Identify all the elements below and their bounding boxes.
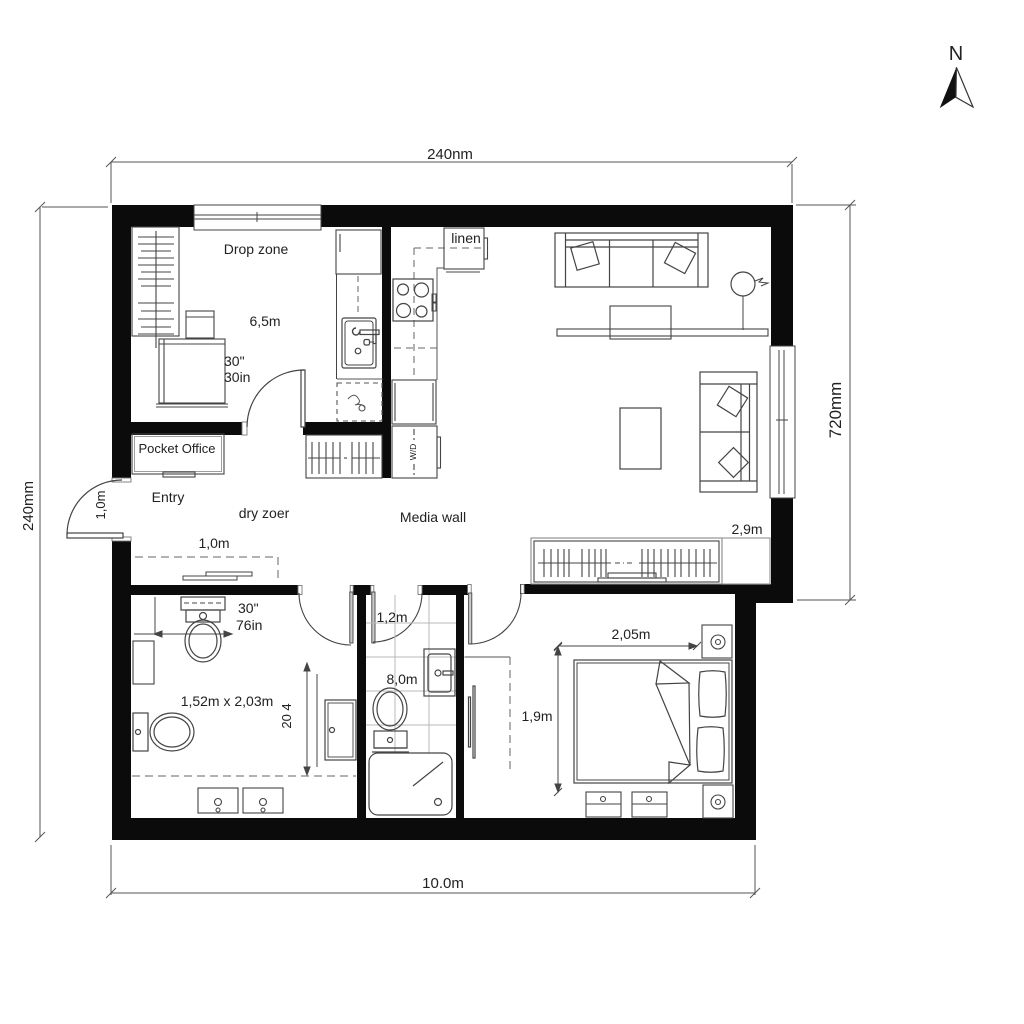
svg-text:6,5m: 6,5m [249,313,280,329]
svg-text:240mm: 240mm [20,481,37,531]
svg-text:10.0m: 10.0m [422,875,464,892]
svg-text:2,9m: 2,9m [731,521,762,537]
svg-text:720mm: 720mm [826,382,845,439]
svg-text:2,05m: 2,05m [612,626,651,642]
svg-text:30in: 30in [224,369,250,385]
svg-text:Drop zone: Drop zone [224,241,289,257]
svg-text:20 4: 20 4 [279,703,294,728]
svg-text:W/D: W/D [408,444,418,461]
svg-text:Entry: Entry [152,489,185,505]
svg-text:1,9m: 1,9m [521,708,552,724]
svg-text:1,0m: 1,0m [93,491,108,520]
svg-text:30": 30" [224,353,245,369]
svg-text:Media wall: Media wall [400,509,466,525]
svg-text:N: N [949,43,963,65]
svg-text:76in: 76in [236,617,262,633]
svg-text:1,0m: 1,0m [198,535,229,551]
svg-text:1,2m: 1,2m [376,609,407,625]
svg-text:30": 30" [238,600,259,616]
svg-text:dry zoer: dry zoer [239,505,290,521]
svg-text:linen: linen [451,230,481,246]
svg-text:240nm: 240nm [427,146,473,163]
svg-text:8,0m: 8,0m [386,671,417,687]
svg-text:Pocket Office: Pocket Office [138,441,215,456]
svg-text:1,52m x 2,03m: 1,52m x 2,03m [181,693,274,709]
